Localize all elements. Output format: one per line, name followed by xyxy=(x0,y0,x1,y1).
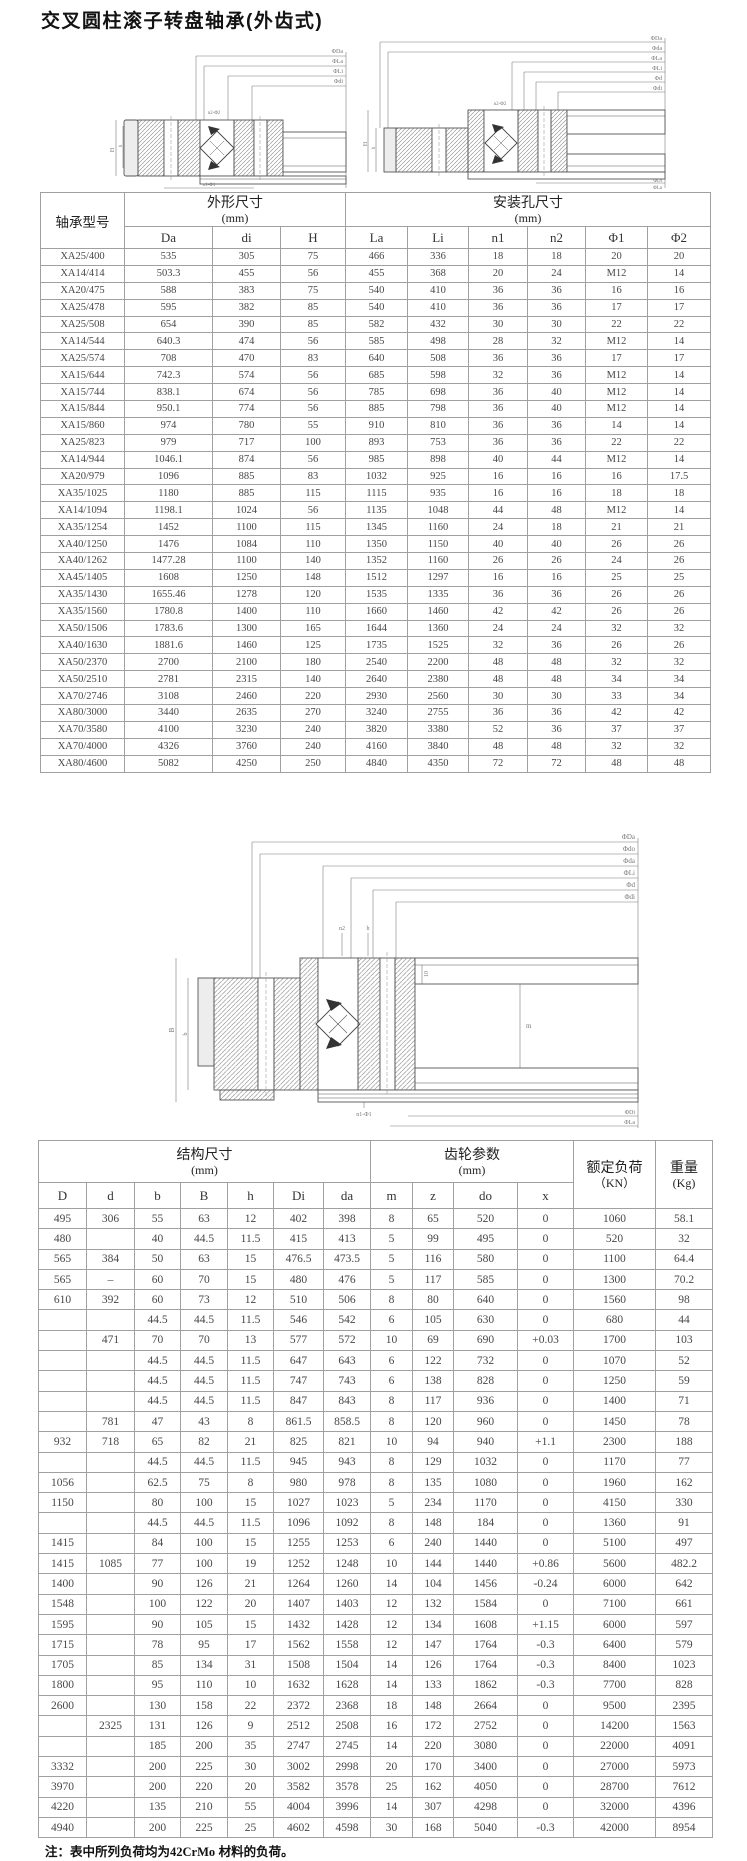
table-row: 333220022530300229982017034000270005973 xyxy=(39,1757,713,1777)
table-cell: 2752 xyxy=(454,1716,518,1736)
table-cell: 1881.6 xyxy=(125,637,213,654)
table-cell: 58.1 xyxy=(656,1209,713,1229)
table-cell: 70.2 xyxy=(656,1269,713,1289)
table-cell: 336 xyxy=(408,249,469,266)
table-cell: 30 xyxy=(371,1817,413,1837)
dimension-label: b xyxy=(183,1033,189,1036)
table-cell: 21 xyxy=(228,1574,274,1594)
table-cell: 2372 xyxy=(274,1696,324,1716)
table-row: XA14/10941198.1102456113510484448M1214 xyxy=(41,502,711,519)
table-cell: 0 xyxy=(518,1594,574,1614)
table-cell: 732 xyxy=(454,1351,518,1371)
table-row: 1548100122201407140312132158407100661 xyxy=(39,1594,713,1614)
table-cell: 885 xyxy=(213,485,281,502)
table-cell: 22 xyxy=(648,434,711,451)
table-cell: 885 xyxy=(346,401,408,418)
table-cell: 582 xyxy=(346,316,408,333)
dimension-label: ΦLi xyxy=(333,69,343,75)
table-cell: 30 xyxy=(528,688,586,705)
table-cell: 2368 xyxy=(324,1696,371,1716)
table-cell: 1780.8 xyxy=(125,603,213,620)
table-cell: 2600 xyxy=(39,1696,87,1716)
table-cell: 1170 xyxy=(454,1493,518,1513)
table-cell: 225 xyxy=(181,1757,228,1777)
table-cell: 73 xyxy=(181,1290,228,1310)
table-cell: 80 xyxy=(135,1493,181,1513)
table-cell: 415 xyxy=(274,1229,324,1249)
table-cell: 12 xyxy=(228,1290,274,1310)
table-cell: 56 xyxy=(281,451,346,468)
table-cell: 36 xyxy=(469,705,528,722)
table-cell: 56 xyxy=(281,265,346,282)
table-cell: 455 xyxy=(346,265,408,282)
table-row: 23251311269251225081617227520142001563 xyxy=(39,1716,713,1736)
column-group-gear-params: 齿轮参数 (mm) xyxy=(371,1141,574,1183)
table-cell: 874 xyxy=(213,451,281,468)
table-cell: 168 xyxy=(413,1817,454,1837)
table-cell: 18 xyxy=(586,485,648,502)
table-cell: 59 xyxy=(656,1371,713,1391)
table-cell: 743 xyxy=(324,1371,371,1391)
table-cell: 22 xyxy=(586,434,648,451)
table-cell: 1160 xyxy=(408,553,469,570)
table-cell: 0 xyxy=(518,1513,574,1533)
table-cell: XA14/1094 xyxy=(41,502,125,519)
table-cell: 4004 xyxy=(274,1797,324,1817)
table-cell: 838.1 xyxy=(125,384,213,401)
table-cell: 48 xyxy=(469,671,528,688)
table-cell: 48 xyxy=(469,738,528,755)
table-cell: 572 xyxy=(324,1330,371,1350)
table-cell: 455 xyxy=(213,265,281,282)
table-cell: 932 xyxy=(39,1432,87,1452)
table-cell: -0.3 xyxy=(518,1817,574,1837)
table-cell: 1352 xyxy=(346,553,408,570)
table-cell: 1608 xyxy=(454,1614,518,1634)
table-cell: 21 xyxy=(648,519,711,536)
table-cell: 2200 xyxy=(408,654,469,671)
table-cell: 4091 xyxy=(656,1736,713,1756)
table-cell: 34 xyxy=(586,671,648,688)
table-cell: 185 xyxy=(135,1736,181,1756)
table-cell: 130 xyxy=(135,1696,181,1716)
column-header: z xyxy=(413,1183,454,1209)
table-cell: 162 xyxy=(413,1777,454,1797)
table-row: XA25/5086543908558243230302222 xyxy=(41,316,711,333)
dimension-label: n1-Φ1 xyxy=(203,183,216,188)
table-cell: M12 xyxy=(586,333,648,350)
table-cell: 640 xyxy=(346,350,408,367)
hatched-outer-ring xyxy=(396,128,432,172)
group-unit: (mm) xyxy=(346,212,710,225)
table-cell: 580 xyxy=(454,1249,518,1269)
group-label: 外形尺寸 xyxy=(125,194,345,212)
table-cell: 134 xyxy=(181,1655,228,1675)
table-cell: 14 xyxy=(648,333,711,350)
table-cell: 680 xyxy=(574,1310,656,1330)
table-cell: 25 xyxy=(371,1777,413,1797)
table-cell: 2315 xyxy=(213,671,281,688)
table-cell: 5973 xyxy=(656,1757,713,1777)
table-cell xyxy=(39,1371,87,1391)
table-cell: 3400 xyxy=(454,1757,518,1777)
table-cell: 60 xyxy=(135,1269,181,1289)
table-cell: 78 xyxy=(135,1635,181,1655)
table-cell: 16 xyxy=(528,569,586,586)
table-cell: +0.86 xyxy=(518,1554,574,1574)
table-cell: 110 xyxy=(181,1675,228,1695)
table-cell: 220 xyxy=(181,1777,228,1797)
table-cell: 28 xyxy=(469,333,528,350)
table-row: XA35/14301655.4612781201535133536362626 xyxy=(41,586,711,603)
table-cell: 26 xyxy=(528,553,586,570)
table-cell: 885 xyxy=(213,468,281,485)
table-cell: XA25/823 xyxy=(41,434,125,451)
table-cell: 1563 xyxy=(656,1716,713,1736)
table-cell: 473.5 xyxy=(324,1249,371,1269)
table-body: XA25/4005353057546633618182020XA14/41450… xyxy=(41,249,711,773)
table-row: 1595901051514321428121341608+1.156000597 xyxy=(39,1614,713,1634)
table-cell: 1150 xyxy=(39,1493,87,1513)
dimension-label: ΦDi xyxy=(653,179,662,184)
table-cell: XA25/574 xyxy=(41,350,125,367)
table-cell: 100 xyxy=(281,434,346,451)
bearing-section xyxy=(198,952,638,1102)
table-cell: 100 xyxy=(181,1493,228,1513)
table-cell: 5100 xyxy=(574,1533,656,1553)
hatched-outer-ring xyxy=(214,978,258,1090)
table-cell: 44.5 xyxy=(181,1229,228,1249)
dimension-label: ΦLa xyxy=(653,186,663,190)
table-cell: 14200 xyxy=(574,1716,656,1736)
table-cell xyxy=(39,1411,87,1431)
table-cell: 12 xyxy=(228,1209,274,1229)
table-cell: 535 xyxy=(125,249,213,266)
table-cell: 69 xyxy=(413,1330,454,1350)
table-cell: 133 xyxy=(413,1675,454,1695)
dimension-label: H xyxy=(363,141,369,146)
table-cell: 4326 xyxy=(125,738,213,755)
table-cell: 798 xyxy=(408,401,469,418)
table-cell: 3108 xyxy=(125,688,213,705)
table-cell: 16 xyxy=(469,468,528,485)
table-cell: 661 xyxy=(656,1594,713,1614)
table-cell: 11.5 xyxy=(228,1391,274,1411)
table-cell: 674 xyxy=(213,384,281,401)
table-cell: 225 xyxy=(181,1817,228,1837)
table-cell: 36 xyxy=(528,417,586,434)
table-cell: XA25/478 xyxy=(41,299,125,316)
table-cell: 47 xyxy=(135,1411,181,1431)
table-cell: 2380 xyxy=(408,671,469,688)
table-cell: 0 xyxy=(518,1290,574,1310)
table-cell: 1255 xyxy=(274,1533,324,1553)
table-cell: 685 xyxy=(346,367,408,384)
table-cell: 5 xyxy=(371,1249,413,1269)
table-cell: 1456 xyxy=(454,1574,518,1594)
table-cell: 62.5 xyxy=(135,1472,181,1492)
dimension-lines-bottom: n1-Φ1 ΦDi ΦLa xyxy=(356,1102,638,1126)
table-cell: 4298 xyxy=(454,1797,518,1817)
table-cell xyxy=(39,1330,87,1350)
table-cell: 42 xyxy=(469,603,528,620)
table-cell: 36 xyxy=(469,282,528,299)
table-cell: 2747 xyxy=(274,1736,324,1756)
table-cell: XA20/979 xyxy=(41,468,125,485)
table-cell: 1096 xyxy=(274,1513,324,1533)
table-cell: 2300 xyxy=(574,1432,656,1452)
table-cell: 36 xyxy=(528,367,586,384)
table-cell: 2745 xyxy=(324,1736,371,1756)
table-cell: 172 xyxy=(413,1716,454,1736)
table-cell: 26 xyxy=(586,603,648,620)
table-cell: 17.5 xyxy=(648,468,711,485)
table-cell: 44.5 xyxy=(135,1351,181,1371)
table-cell: 35 xyxy=(228,1736,274,1756)
table-cell: 410 xyxy=(408,299,469,316)
table-cell: 2560 xyxy=(408,688,469,705)
table-cell: 95 xyxy=(181,1635,228,1655)
hatched-inner-ring xyxy=(551,110,567,172)
table-cell: 979 xyxy=(125,434,213,451)
table-cell: 0 xyxy=(518,1493,574,1513)
table-cell: 747 xyxy=(274,1371,324,1391)
table-cell: 26 xyxy=(648,603,711,620)
group-label: 安装孔尺寸 xyxy=(346,194,710,212)
table-cell: 1198.1 xyxy=(125,502,213,519)
table-cell: 945 xyxy=(274,1452,324,1472)
table-cell: 148 xyxy=(281,569,346,586)
table-cell: 6000 xyxy=(574,1574,656,1594)
table-cell: 383 xyxy=(213,282,281,299)
table-cell: 1400 xyxy=(213,603,281,620)
table-cell: 1360 xyxy=(574,1513,656,1533)
table-cell: 3760 xyxy=(213,738,281,755)
table-cell: 14 xyxy=(648,384,711,401)
table-cell: 26 xyxy=(469,553,528,570)
dimension-label: Φdi xyxy=(334,79,343,85)
table-row: 565384506315476.5473.551165800110064.4 xyxy=(39,1249,713,1269)
table-cell: 48 xyxy=(528,671,586,688)
table-cell: 80 xyxy=(413,1290,454,1310)
table-row: 171578951715621558121471764-0.36400579 xyxy=(39,1635,713,1655)
table-cell: 140 xyxy=(281,671,346,688)
table-cell: 1960 xyxy=(574,1472,656,1492)
table-cell: 40 xyxy=(469,451,528,468)
table-cell: 125 xyxy=(281,637,346,654)
table-cell: 7612 xyxy=(656,1777,713,1797)
table-cell: 1084 xyxy=(213,536,281,553)
table-cell: 83 xyxy=(281,468,346,485)
table-cell: 44.5 xyxy=(181,1452,228,1472)
table-cell: 1046.1 xyxy=(125,451,213,468)
dimension-label: 10 xyxy=(424,971,430,977)
table-cell: 647 xyxy=(274,1351,324,1371)
table-cell: 15 xyxy=(228,1614,274,1634)
table-cell: 48 xyxy=(528,654,586,671)
table-cell: 85 xyxy=(281,299,346,316)
table-cell: 5 xyxy=(371,1493,413,1513)
table-row: XA70/3580410032302403820338052363737 xyxy=(41,721,711,738)
table-cell: 36 xyxy=(469,384,528,401)
table-cell: 48 xyxy=(528,738,586,755)
table-cell: 847 xyxy=(274,1391,324,1411)
table-cell: 48 xyxy=(648,755,711,772)
table-cell: 10 xyxy=(228,1675,274,1695)
table-row: 44.544.511.51096109281481840136091 xyxy=(39,1513,713,1533)
table-row: 14158410015125512536240144005100497 xyxy=(39,1533,713,1553)
table-cell: 1403 xyxy=(324,1594,371,1614)
table-row: 565–60701548047651175850130070.2 xyxy=(39,1269,713,1289)
table-cell: 16 xyxy=(528,485,586,502)
table-cell: 1096 xyxy=(125,468,213,485)
table-cell: 595 xyxy=(125,299,213,316)
table-cell: 520 xyxy=(574,1229,656,1249)
table-cell: 597 xyxy=(656,1614,713,1634)
table-cell: 44 xyxy=(528,451,586,468)
table-cell: 250 xyxy=(281,755,346,772)
table-cell: 15 xyxy=(228,1249,274,1269)
table-cell: 42 xyxy=(648,705,711,722)
table-cell: 8 xyxy=(371,1290,413,1310)
table-cell: 1560 xyxy=(574,1290,656,1310)
table-cell: 32 xyxy=(648,654,711,671)
table-cell: 1428 xyxy=(324,1614,371,1634)
table-cell xyxy=(39,1351,87,1371)
table-cell: +1.15 xyxy=(518,1614,574,1634)
table-cell: 18 xyxy=(528,249,586,266)
table-cell: 476.5 xyxy=(274,1249,324,1269)
table-cell: 36 xyxy=(528,434,586,451)
table-cell: 70 xyxy=(181,1269,228,1289)
table-row: 397020022020358235782516240500287007612 xyxy=(39,1777,713,1797)
table-cell: 20 xyxy=(371,1757,413,1777)
table-row: 1705851343115081504141261764-0.384001023 xyxy=(39,1655,713,1675)
table-cell: 432 xyxy=(408,316,469,333)
table-cell: XA25/508 xyxy=(41,316,125,333)
table-cell: 1764 xyxy=(454,1635,518,1655)
table-cell: 31 xyxy=(228,1655,274,1675)
table-cell: 1477.28 xyxy=(125,553,213,570)
table-cell: 974 xyxy=(125,417,213,434)
table-cell: 4940 xyxy=(39,1817,87,1837)
table-cell: 14 xyxy=(648,451,711,468)
table-cell: 1440 xyxy=(454,1554,518,1574)
table-cell: 3002 xyxy=(274,1757,324,1777)
table-cell xyxy=(87,1614,135,1634)
footnote-text: 材料的负荷。 xyxy=(219,1845,294,1859)
table-cell: 1060 xyxy=(574,1209,656,1229)
table-cell: 4100 xyxy=(125,721,213,738)
table-cell: 753 xyxy=(408,434,469,451)
column-header: Di xyxy=(274,1183,324,1209)
table-row: 18520035274727451422030800220004091 xyxy=(39,1736,713,1756)
table-cell: 1260 xyxy=(324,1574,371,1594)
table-cell: 498 xyxy=(408,333,469,350)
table-cell: M12 xyxy=(586,401,648,418)
table-cell: 15 xyxy=(228,1493,274,1513)
table-cell xyxy=(87,1391,135,1411)
table-cell: 466 xyxy=(346,249,408,266)
table-row: 105662.57589809788135108001960162 xyxy=(39,1472,713,1492)
table-cell: 135 xyxy=(135,1797,181,1817)
table-cell: 1764 xyxy=(454,1655,518,1675)
table-cell: -0.24 xyxy=(518,1574,574,1594)
table-row: XA15/844950.1774568857983640M1214 xyxy=(41,401,711,418)
table-cell: 21 xyxy=(586,519,648,536)
table-cell: 110 xyxy=(281,536,346,553)
column-header: La xyxy=(346,227,408,249)
table-row: XA25/4005353057546633618182020 xyxy=(41,249,711,266)
table-cell: 50 xyxy=(135,1249,181,1269)
dimension-label: Φda xyxy=(652,46,662,52)
table-cell: 503.3 xyxy=(125,265,213,282)
dimension-label: ΦDi xyxy=(625,1110,636,1116)
table-cell: XA50/1506 xyxy=(41,620,125,637)
table-cell: 893 xyxy=(346,434,408,451)
table-cell: 44.5 xyxy=(135,1310,181,1330)
table-cell: 40 xyxy=(528,384,586,401)
table-cell: 117 xyxy=(413,1391,454,1411)
table-cell: 42 xyxy=(586,705,648,722)
table-cell: 180 xyxy=(281,654,346,671)
table-cell: 1080 xyxy=(454,1472,518,1492)
table-cell: 0 xyxy=(518,1696,574,1716)
table-cell: 1300 xyxy=(574,1269,656,1289)
table-cell: 36 xyxy=(528,705,586,722)
gear-rim-strip xyxy=(200,176,346,184)
table-row: 44.544.511.574774361388280125059 xyxy=(39,1371,713,1391)
column-header: d xyxy=(87,1183,135,1209)
table-cell: 1452 xyxy=(125,519,213,536)
table-cell: 94 xyxy=(413,1432,454,1452)
footnote-text: 表中所列负荷均为 xyxy=(70,1845,170,1859)
table-row: 44.544.511.5945943812910320117077 xyxy=(39,1452,713,1472)
table-cell: 18 xyxy=(528,519,586,536)
table-cell: 1048 xyxy=(408,502,469,519)
table-cell: 98 xyxy=(656,1290,713,1310)
table-cell: 71 xyxy=(656,1391,713,1411)
table-cell: 1092 xyxy=(324,1513,371,1533)
table-cell: 577 xyxy=(274,1330,324,1350)
table-cell: 36 xyxy=(528,637,586,654)
table-cell: 3230 xyxy=(213,721,281,738)
column-header: x xyxy=(518,1183,574,1209)
bearing-section xyxy=(384,106,665,179)
table-cell xyxy=(39,1391,87,1411)
table-cell: XA15/844 xyxy=(41,401,125,418)
table-cell: 1253 xyxy=(324,1533,371,1553)
table-cell xyxy=(39,1310,87,1330)
table-cell: 565 xyxy=(39,1249,87,1269)
table-row: 422013521055400439961430742980320004396 xyxy=(39,1797,713,1817)
table-cell: 18 xyxy=(371,1696,413,1716)
table-cell: +0.03 xyxy=(518,1330,574,1350)
table-cell: 935 xyxy=(408,485,469,502)
table-cell: 1032 xyxy=(454,1452,518,1472)
table-cell xyxy=(87,1797,135,1817)
table-cell: 32 xyxy=(586,620,648,637)
table-cell: 14 xyxy=(648,265,711,282)
table-cell xyxy=(87,1493,135,1513)
table-cell: 0 xyxy=(518,1757,574,1777)
table-cell: 0 xyxy=(518,1249,574,1269)
table-cell: 542 xyxy=(324,1310,371,1330)
column-header-weight: 重量 (Kg) xyxy=(656,1141,713,1209)
table-cell: XA25/400 xyxy=(41,249,125,266)
dimension-label: ΦLa xyxy=(332,59,343,65)
table-cell: 579 xyxy=(656,1635,713,1655)
